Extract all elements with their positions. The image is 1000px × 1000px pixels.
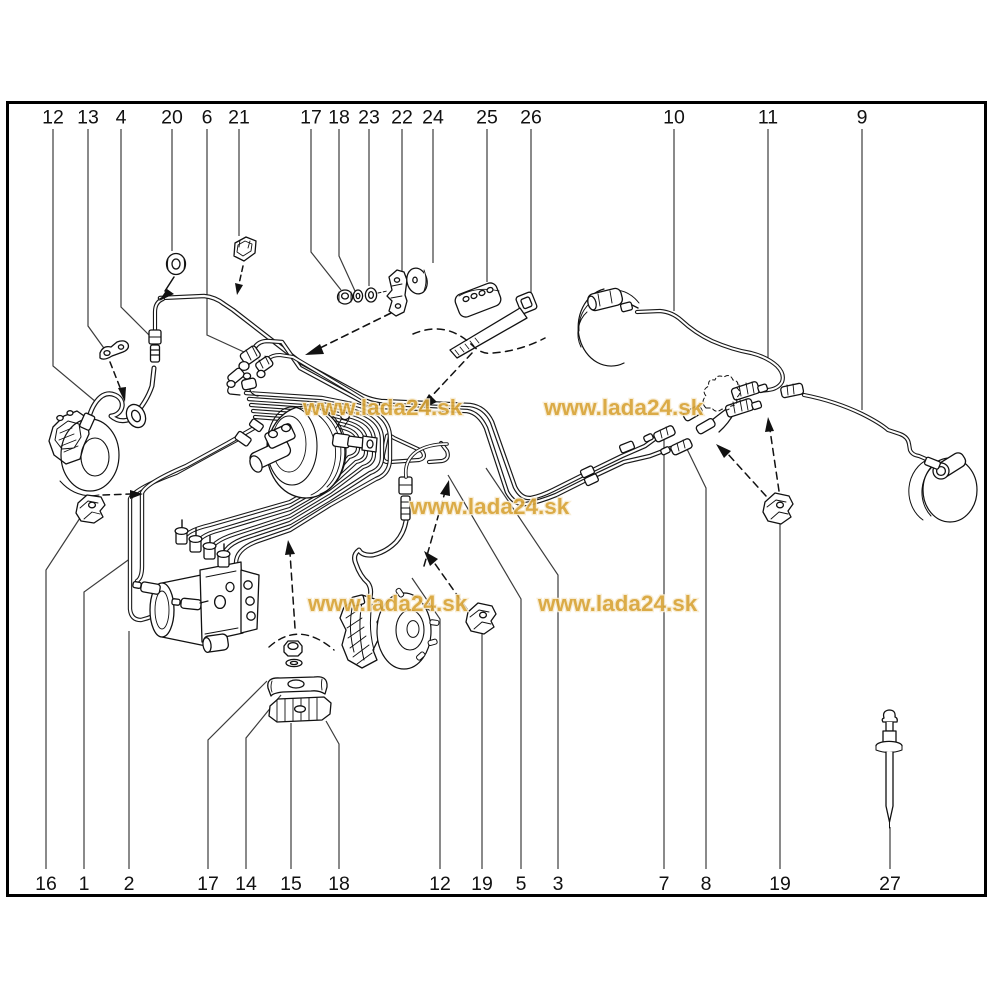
svg-text:19: 19 (471, 873, 493, 895)
svg-text:26: 26 (520, 107, 542, 129)
svg-text:18: 18 (328, 873, 350, 895)
svg-text:16: 16 (35, 873, 57, 895)
svg-text:5: 5 (516, 873, 527, 895)
svg-text:22: 22 (391, 107, 413, 129)
svg-text:13: 13 (77, 107, 99, 129)
svg-text:23: 23 (358, 107, 380, 129)
svg-text:17: 17 (197, 873, 219, 895)
svg-text:www.lada24.sk: www.lada24.sk (543, 395, 704, 420)
svg-text:www.lada24.sk: www.lada24.sk (409, 494, 570, 519)
svg-text:2: 2 (124, 873, 135, 895)
svg-text:6: 6 (202, 107, 213, 129)
svg-text:10: 10 (663, 107, 685, 129)
svg-text:4: 4 (116, 107, 127, 129)
svg-text:27: 27 (879, 873, 901, 895)
svg-text:20: 20 (161, 107, 183, 129)
svg-text:15: 15 (280, 873, 302, 895)
svg-text:1: 1 (79, 873, 90, 895)
svg-text:8: 8 (701, 873, 712, 895)
svg-text:www.lada24.sk: www.lada24.sk (537, 591, 698, 616)
svg-text:www.lada24.sk: www.lada24.sk (302, 395, 463, 420)
svg-text:21: 21 (228, 107, 250, 129)
svg-text:9: 9 (857, 107, 868, 129)
svg-text:3: 3 (553, 873, 564, 895)
svg-text:19: 19 (769, 873, 791, 895)
svg-text:12: 12 (429, 873, 451, 895)
svg-text:7: 7 (659, 873, 670, 895)
svg-text:17: 17 (300, 107, 322, 129)
svg-text:14: 14 (235, 873, 257, 895)
svg-text:12: 12 (42, 107, 64, 129)
svg-text:18: 18 (328, 107, 350, 129)
svg-text:24: 24 (422, 107, 444, 129)
svg-text:www.lada24.sk: www.lada24.sk (307, 591, 468, 616)
svg-text:25: 25 (476, 107, 498, 129)
svg-text:11: 11 (758, 107, 778, 129)
